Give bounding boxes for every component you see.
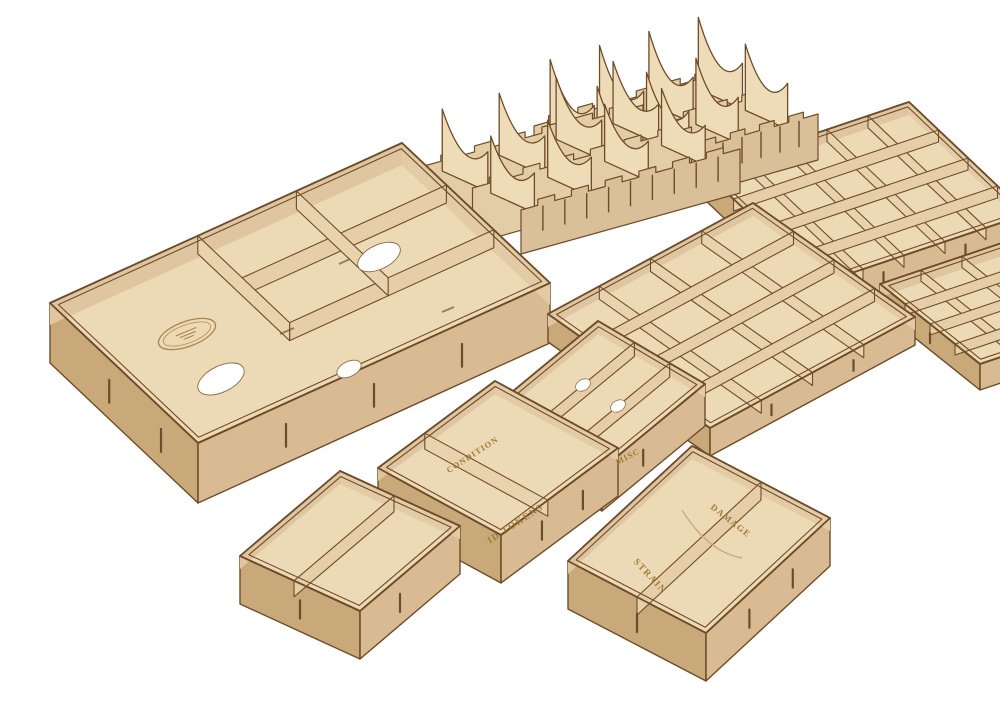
product-photo: CONDITION ID TOKENS MISC DAMAGE STRAIN	[40, 16, 1000, 703]
organizer-photo-svg: CONDITION ID TOKENS MISC DAMAGE STRAIN	[40, 16, 1000, 703]
scene-layer	[50, 17, 1000, 681]
